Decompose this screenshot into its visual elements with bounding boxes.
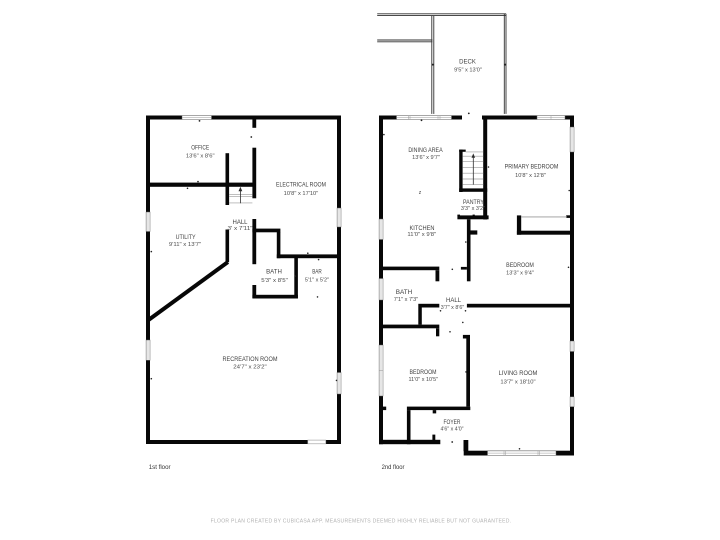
svg-text:2nd floor: 2nd floor	[382, 464, 405, 471]
svg-text:7'1" x 7'3": 7'1" x 7'3"	[394, 297, 419, 303]
svg-text:13'6" x 9'7": 13'6" x 9'7"	[412, 155, 440, 161]
svg-text:11'0" x 9'8": 11'0" x 9'8"	[407, 232, 436, 238]
svg-text:BATH: BATH	[266, 269, 282, 276]
svg-text:FOYER: FOYER	[444, 419, 461, 426]
svg-text:1st floor: 1st floor	[149, 464, 171, 471]
svg-text:BAR: BAR	[312, 269, 322, 276]
svg-text:4'6" x 4'0": 4'6" x 4'0"	[441, 426, 464, 432]
svg-text:BEDROOM: BEDROOM	[506, 262, 534, 269]
svg-text:KITCHEN: KITCHEN	[410, 225, 435, 232]
svg-text:10'8" x 12'8": 10'8" x 12'8"	[515, 173, 546, 179]
svg-text:11'0" x 10'5": 11'0" x 10'5"	[409, 377, 439, 383]
svg-text:3'7" x 8'6": 3'7" x 8'6"	[441, 305, 465, 311]
svg-text:DECK: DECK	[459, 59, 476, 66]
svg-text:HALL: HALL	[233, 219, 249, 226]
svg-text:ELECTRICAL ROOM: ELECTRICAL ROOM	[276, 182, 326, 189]
svg-text:5'1" x 5'2": 5'1" x 5'2"	[305, 277, 329, 283]
svg-text:BEDROOM: BEDROOM	[410, 369, 437, 376]
svg-text:PRIMARY BEDROOM: PRIMARY BEDROOM	[505, 164, 559, 171]
svg-text:9'11" x 13'7": 9'11" x 13'7"	[169, 242, 201, 248]
svg-text:OFFICE: OFFICE	[191, 145, 209, 152]
svg-text:10'8" x 17'10": 10'8" x 17'10"	[284, 191, 319, 197]
svg-text:FLOOR PLAN CREATED BY CUBICASA: FLOOR PLAN CREATED BY CUBICASA APP. MEAS…	[211, 518, 512, 524]
svg-text:13'6" x 8'6": 13'6" x 8'6"	[186, 153, 215, 159]
svg-text:LIVING ROOM: LIVING ROOM	[499, 370, 538, 377]
svg-text:UTILITY: UTILITY	[176, 234, 196, 241]
svg-text:BATH: BATH	[396, 289, 413, 296]
svg-text:RECREATION ROOM: RECREATION ROOM	[223, 356, 278, 363]
svg-text:24'7" x 23'2": 24'7" x 23'2"	[233, 364, 266, 370]
svg-text:DINING AREA: DINING AREA	[408, 147, 443, 154]
svg-text:HALL: HALL	[446, 297, 462, 304]
svg-text:13'3" x 9'4": 13'3" x 9'4"	[506, 271, 534, 277]
svg-text:3'3" x 3'2": 3'3" x 3'2"	[461, 206, 485, 212]
svg-text:9'5" x 13'0": 9'5" x 13'0"	[454, 68, 482, 74]
svg-text:5'3" x 8'5": 5'3" x 8'5"	[261, 278, 288, 284]
svg-text:13'7" x 18'10": 13'7" x 18'10"	[500, 380, 535, 386]
svg-text:3' x 7'11": 3' x 7'11"	[228, 226, 253, 232]
